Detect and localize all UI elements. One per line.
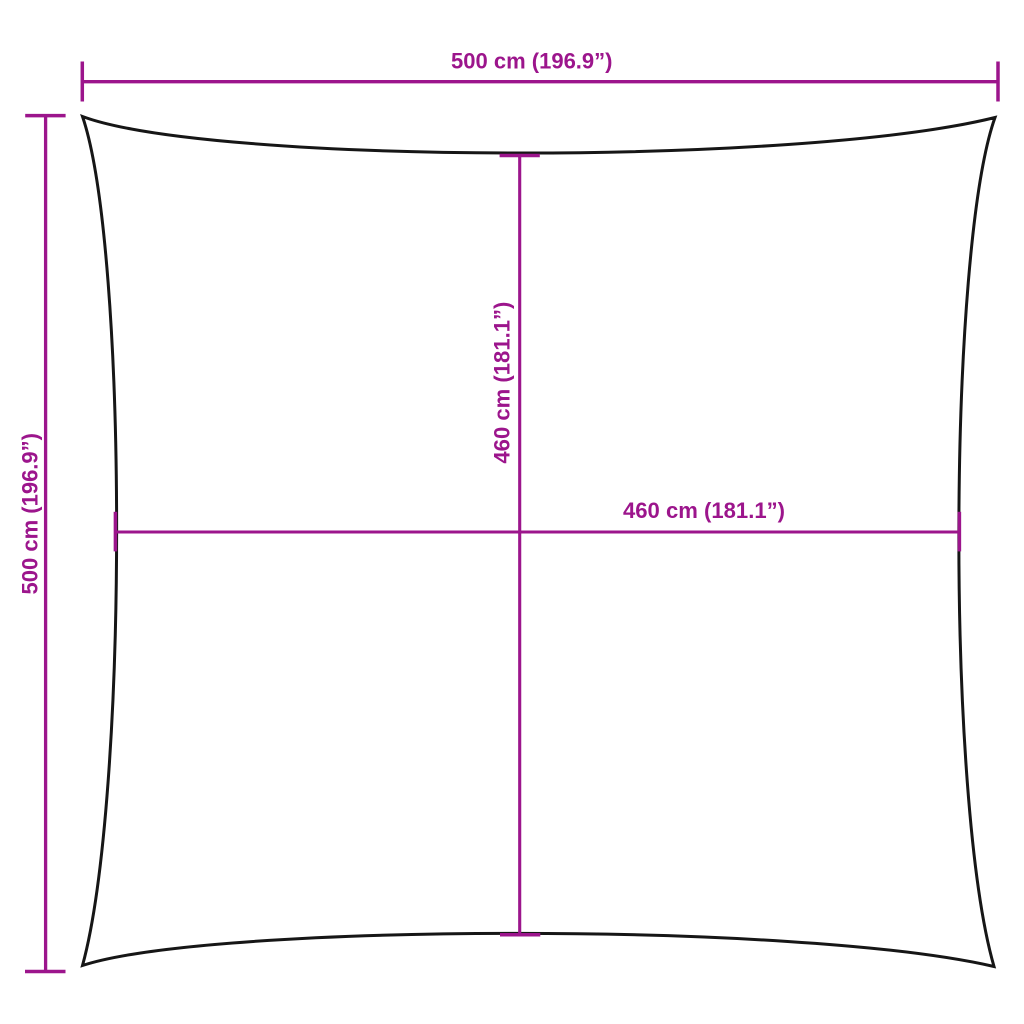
svg-text:500 cm (196.9”): 500 cm (196.9”) xyxy=(18,433,43,595)
svg-text:460 cm (181.1”): 460 cm (181.1”) xyxy=(489,302,514,464)
svg-text:460 cm (181.1”): 460 cm (181.1”) xyxy=(623,498,785,523)
svg-text:500 cm (196.9”): 500 cm (196.9”) xyxy=(451,49,613,74)
